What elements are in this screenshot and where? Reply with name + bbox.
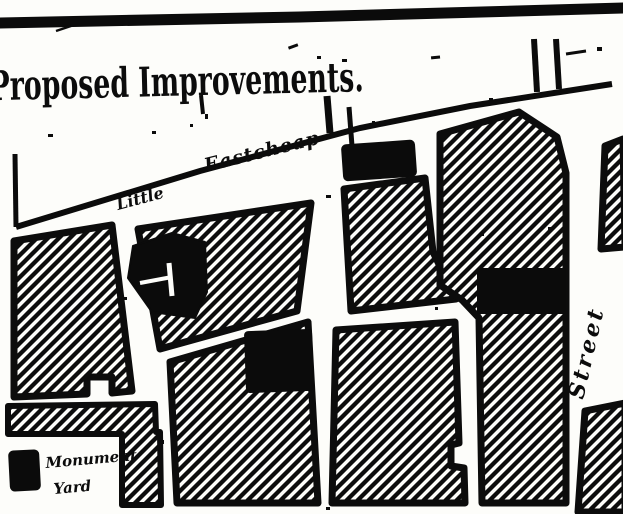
city-block-south-center bbox=[332, 322, 465, 503]
north-side-street-kerb-2 bbox=[327, 96, 330, 133]
label-monument-yard-line2: Yard bbox=[53, 477, 93, 498]
west-street-kerb-line bbox=[15, 154, 16, 227]
top-right-street-kerb-west bbox=[534, 39, 537, 92]
map-scan: Proposed Improvements. Little Eastcheap … bbox=[0, 0, 623, 514]
solid-building-band-east bbox=[477, 268, 566, 314]
north-side-street-kerb-1 bbox=[201, 95, 203, 114]
church-building bbox=[128, 233, 207, 318]
street-dash-mark bbox=[566, 51, 586, 54]
label-street: Street bbox=[564, 304, 610, 401]
north-side-street-kerb-3 bbox=[349, 107, 352, 146]
monument-square bbox=[8, 449, 41, 492]
plate-top-border-line bbox=[0, 8, 623, 23]
city-block-north-east-sliver bbox=[601, 139, 623, 249]
city-block-west bbox=[14, 225, 132, 397]
city-block-south-east bbox=[578, 403, 623, 512]
solid-building-center bbox=[244, 329, 314, 393]
top-right-street-kerb-east bbox=[556, 39, 559, 89]
page-title: Proposed Improvements. bbox=[0, 53, 364, 110]
proposed-improvements-map: Proposed Improvements. Little Eastcheap … bbox=[0, 0, 623, 514]
solid-building-north bbox=[341, 139, 417, 181]
label-eastcheap: Eastcheap bbox=[201, 127, 322, 177]
